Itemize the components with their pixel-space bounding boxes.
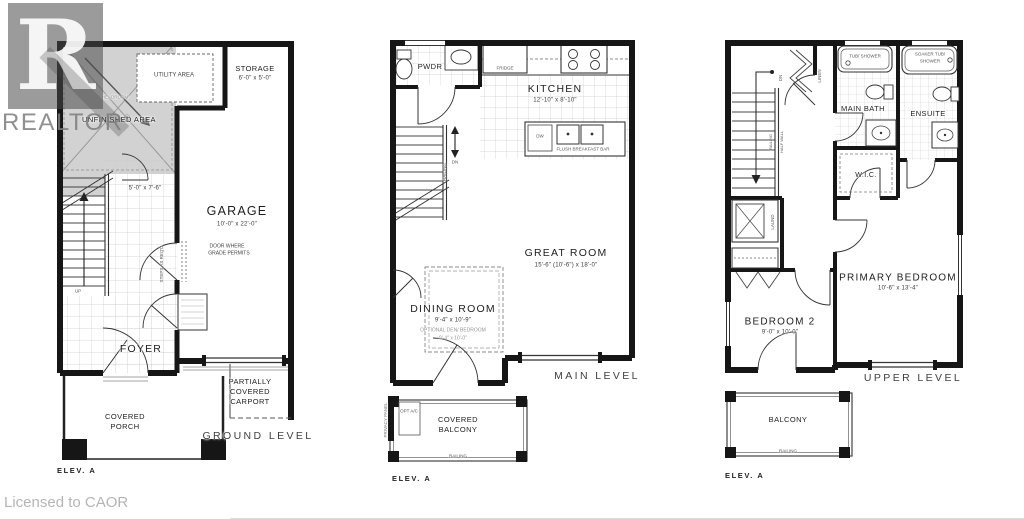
upper-level-plan: DN RAILING HALF WALL LINEN TUB/ SHOWER S…	[720, 30, 970, 485]
main-level-title: MAIN LEVEL	[554, 371, 640, 383]
carport-label-line3: CARPORT	[230, 398, 269, 406]
license-text: Licensed to CAOR	[4, 494, 128, 511]
great-room-dims: 15'-6" (10'-6") x 18'-0"	[535, 263, 598, 270]
upper-plan-drawing	[720, 30, 970, 485]
dishwasher-label: DW	[536, 135, 544, 140]
optional-den-dims: 9'-4" x 10'-0"	[439, 336, 467, 342]
storage-dims: 6'-0" x 5'-0"	[239, 76, 272, 83]
balcony-label-line2: BALCONY	[439, 426, 478, 434]
kitchen-dims: 12'-10" x 8'-10"	[533, 98, 576, 105]
ground-level-title: GROUND LEVEL	[202, 431, 313, 443]
bedroom2-dims: 9'-0" x 10'-0"	[762, 330, 798, 337]
upper-elevation-label: ELEV. A	[725, 471, 764, 480]
stair-landing-dims: 5'-0" x 7'-6"	[129, 186, 162, 193]
powder-room-label: PWDR	[418, 63, 443, 71]
realtor-wordmark: REALTOR®	[2, 109, 132, 137]
stair-railing-label: RAILING	[443, 163, 448, 181]
porch-label-line1: COVERED	[105, 413, 145, 421]
breakfast-bar-label: FLUSH BREAKFAST BAR	[557, 148, 610, 153]
upper-level-title: UPPER LEVEL	[864, 373, 962, 385]
balcony-label: BALCONY	[769, 416, 808, 424]
stairs-dn-label: DN	[452, 161, 459, 166]
dining-room-dims: 9'-4" x 10'-9"	[435, 318, 471, 325]
stair-railing-label: RAILING	[769, 134, 773, 150]
carport-label-line2: COVERED	[230, 388, 270, 396]
door-note-line2: GRADE PERMITS	[208, 251, 249, 257]
main-bath-label: MAIN BATH	[841, 105, 885, 113]
porch-label-line2: PORCH	[110, 423, 139, 431]
headroom-note: HEADROOM	[102, 96, 129, 101]
garage-dims: 10'-0" x 22'-0"	[217, 222, 257, 229]
optional-ac-label: OPT A/C	[400, 410, 418, 415]
realtor-wordmark-text: REALTOR	[2, 109, 124, 136]
dining-room-label: DINING ROOM	[410, 304, 496, 316]
ensuite-label: ENSUITE	[910, 110, 945, 118]
kitchen-label: KITCHEN	[528, 84, 583, 96]
balcony-railing-label: RAILING	[779, 450, 797, 455]
main-elevation-label: ELEV. A	[392, 474, 431, 483]
great-room-label: GREAT ROOM	[525, 248, 608, 260]
registered-trademark-symbol: ®	[124, 113, 132, 123]
fridge-label: FRIDGE	[496, 67, 513, 72]
carport-label-line1: PARTIALLY	[229, 378, 272, 386]
primary-bedroom-dims: 10'-6" x 13'-4"	[878, 286, 918, 293]
privacy-panel-label: PRIVACY PANEL	[384, 402, 389, 437]
bedroom2-label: BEDROOM 2	[745, 317, 816, 328]
main-plan-drawing	[385, 30, 650, 490]
up-label: UP	[75, 290, 81, 295]
door-note-line1: DOOR WHERE	[210, 244, 245, 250]
realtor-watermark: R REALTOR®	[8, 3, 103, 109]
balcony-label-line1: COVERED	[438, 416, 478, 424]
tub-shower-label: TUB/ SHOWER	[849, 55, 881, 60]
main-level-plan: PWDR FRIDGE KITCHEN 12'-10" x 8'-10" DW …	[385, 30, 650, 490]
foyer-label: FOYER	[120, 344, 162, 356]
steps-note: STEPS AS REQ'D	[160, 246, 165, 283]
soaker-tub-label-line2: SHOWER	[920, 60, 940, 65]
floorplan-sheet: UTILITY AREA STORAGE 6'-0" x 5'-0" UNFIN…	[0, 0, 1024, 519]
soaker-tub-label-line1: SOAKER TUB/	[915, 53, 945, 58]
walk-in-closet-label: W.I.C.	[855, 172, 876, 180]
primary-bedroom-label: PRIMARY BEDROOM	[839, 273, 957, 284]
garage-label: GARAGE	[207, 205, 268, 219]
linen-label: LINEN	[818, 69, 823, 82]
laundry-label: LAUND	[771, 214, 776, 229]
ground-elevation-label: ELEV. A	[57, 466, 96, 475]
optional-den-label: OPTIONAL DEN/ BEDROOM	[420, 328, 486, 334]
half-wall-label: HALF WALL	[780, 131, 784, 153]
stairs-dn-label: DN	[779, 75, 784, 82]
utility-area-label: UTILITY AREA	[154, 73, 194, 80]
storage-label: STORAGE	[235, 65, 274, 73]
balcony-railing-label: RAILING	[449, 455, 467, 460]
